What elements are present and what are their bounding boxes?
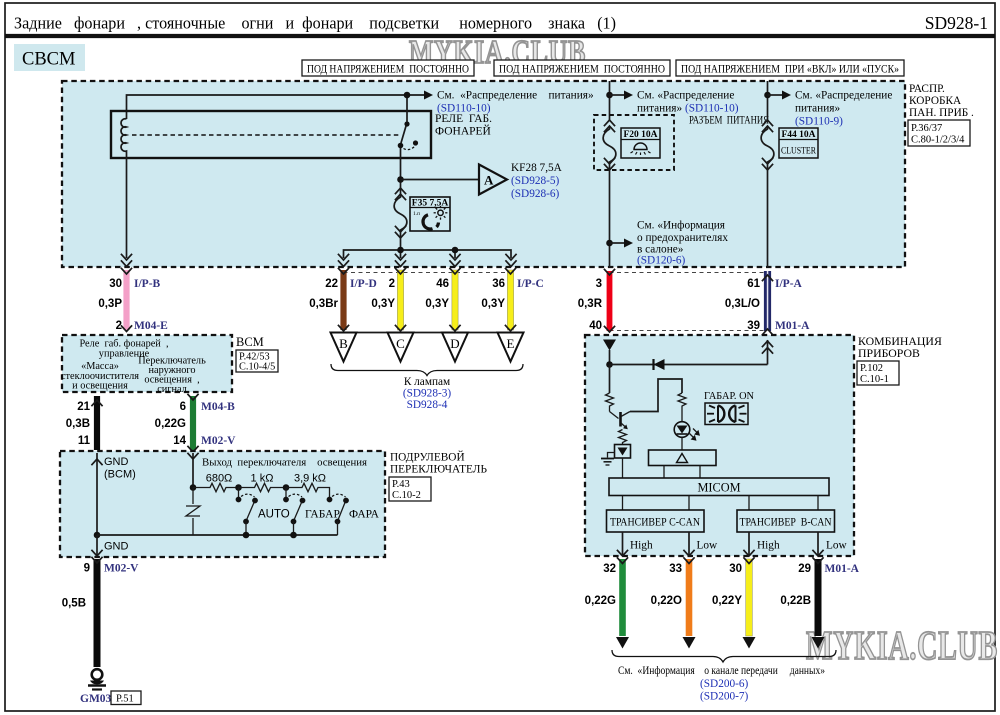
- svg-text:(SD928-3): (SD928-3): [403, 388, 452, 400]
- svg-text:M01-A: M01-A: [775, 320, 810, 332]
- svg-text:ПЕРЕКЛЮЧАТЕЛЬ: ПЕРЕКЛЮЧАТЕЛЬ: [390, 464, 487, 476]
- svg-text:ПОДРУЛЕВОЙ: ПОДРУЛЕВОЙ: [390, 452, 465, 464]
- svg-text:MYKIA.CLUB: MYKIA.CLUB: [806, 622, 998, 668]
- svg-text:См. «Распределение: См. «Распределение: [637, 90, 734, 102]
- svg-text:33: 33: [669, 563, 682, 575]
- svg-text:0,3B: 0,3B: [66, 418, 90, 430]
- svg-text:ФАРА: ФАРА: [349, 509, 380, 521]
- svg-text:D: D: [450, 336, 459, 351]
- svg-text:0,22O: 0,22O: [651, 595, 682, 607]
- svg-text:РАСПР.: РАСПР.: [909, 83, 945, 95]
- svg-text:36: 36: [492, 278, 505, 290]
- svg-text:I/P-A: I/P-A: [775, 278, 803, 290]
- svg-text:ПРИБОРОВ: ПРИБОРОВ: [858, 346, 920, 360]
- svg-text:2: 2: [116, 320, 122, 332]
- svg-text:11: 11: [78, 435, 91, 447]
- svg-text:C.80-1/2/3/4: C.80-1/2/3/4: [911, 135, 965, 146]
- svg-text:1.п: 1.п: [413, 211, 420, 217]
- svg-text:Low: Low: [826, 540, 848, 552]
- svg-text:ФОНАРЕЙ: ФОНАРЕЙ: [435, 124, 491, 138]
- svg-text:(SD928-5): (SD928-5): [511, 175, 560, 187]
- svg-text:B: B: [339, 336, 348, 351]
- svg-text:Low: Low: [697, 540, 719, 552]
- svg-text:GND: GND: [104, 456, 129, 468]
- svg-text:питания»: питания»: [795, 103, 840, 115]
- svg-text:M04-B: M04-B: [201, 401, 235, 413]
- svg-text:3,9 kΩ: 3,9 kΩ: [294, 473, 326, 485]
- svg-text:High: High: [757, 540, 780, 552]
- svg-text:I/P-D: I/P-D: [350, 278, 377, 290]
- svg-text:30: 30: [109, 278, 122, 290]
- svg-text:39: 39: [747, 320, 760, 332]
- svg-text:46: 46: [436, 278, 449, 290]
- svg-text:61: 61: [747, 278, 760, 290]
- svg-text:High: High: [630, 540, 653, 552]
- svg-text:M02-V: M02-V: [201, 435, 236, 447]
- svg-text:РАЗЪЕМ ПИТАНИЯ: РАЗЪЕМ ПИТАНИЯ: [689, 115, 769, 127]
- svg-text:ГАБАР. ON: ГАБАР. ON: [704, 391, 755, 402]
- svg-text:GND: GND: [104, 541, 129, 553]
- svg-text:GM03: GM03: [80, 693, 112, 705]
- svg-text:2: 2: [389, 278, 395, 290]
- svg-text:ТРАНСИВЕР B-CAN: ТРАНСИВЕР B-CAN: [740, 517, 832, 529]
- svg-text:C: C: [396, 336, 405, 351]
- svg-text:РЕЛЕ ГАБ.: РЕЛЕ ГАБ.: [435, 113, 492, 125]
- svg-text:сигнал: сигнал: [157, 384, 187, 395]
- svg-text:ТРАНСИВЕР C-CAN: ТРАНСИВЕР C-CAN: [610, 517, 700, 529]
- svg-text:(SD928-6): (SD928-6): [511, 188, 560, 200]
- svg-text:I/P-C: I/P-C: [517, 278, 544, 290]
- svg-text:0,3Y: 0,3Y: [425, 298, 449, 310]
- svg-text:29: 29: [798, 563, 811, 575]
- svg-text:Задние фонари , стояночные: Задние фонари , стояночные огни и фонари…: [14, 14, 616, 33]
- svg-text:СВСМ: СВСМ: [22, 50, 75, 70]
- svg-text:F20 10A: F20 10A: [623, 130, 657, 140]
- svg-text:C.10-4/5: C.10-4/5: [239, 362, 275, 373]
- svg-text:0,3R: 0,3R: [578, 298, 603, 310]
- svg-text:(SD200-7): (SD200-7): [700, 691, 749, 703]
- svg-text:питания» (SD110-10): питания» (SD110-10): [637, 103, 739, 115]
- svg-text:0,3L/O: 0,3L/O: [725, 298, 760, 310]
- svg-text:I/P-B: I/P-B: [134, 278, 161, 290]
- svg-text:ПОД НАПРЯЖЕНИЕМ ПОСТОЯННО: ПОД НАПРЯЖЕНИЕМ ПОСТОЯННО: [499, 62, 665, 76]
- svg-text:32: 32: [603, 563, 616, 575]
- svg-text:0,22B: 0,22B: [780, 595, 811, 607]
- svg-text:1 kΩ: 1 kΩ: [251, 473, 274, 485]
- svg-text:ВСМ: ВСМ: [236, 335, 264, 349]
- svg-text:(SD110-9): (SD110-9): [795, 116, 843, 128]
- svg-text:M02-V: M02-V: [104, 563, 139, 575]
- svg-text:F44 10A: F44 10A: [781, 130, 815, 140]
- svg-text:(SD110-10): (SD110-10): [437, 103, 491, 115]
- svg-text:См. «Информация: См. «Информация: [637, 220, 725, 232]
- svg-text:MICOM: MICOM: [697, 481, 740, 495]
- svg-text:(BCM): (BCM): [104, 469, 136, 481]
- svg-text:ПОД НАПРЯЖЕНИЕМ ПОСТОЯННО: ПОД НАПРЯЖЕНИЕМ ПОСТОЯННО: [307, 62, 469, 76]
- svg-text:6: 6: [180, 401, 186, 413]
- svg-text:0,5B: 0,5B: [62, 598, 86, 610]
- svg-text:См. «Распределение: См. «Распределение: [795, 90, 892, 102]
- svg-text:A: A: [484, 173, 494, 188]
- svg-text:30: 30: [729, 563, 742, 575]
- svg-text:0,22Y: 0,22Y: [712, 595, 742, 607]
- svg-text:CLUSTER: CLUSTER: [781, 147, 817, 157]
- svg-text:и освещения: и освещения: [72, 381, 128, 392]
- svg-text:К лампам: К лампам: [404, 376, 450, 388]
- svg-text:См. «Информация о канале п: См. «Информация о канале передачи данных…: [618, 665, 825, 677]
- svg-text:(SD120-6): (SD120-6): [637, 255, 686, 267]
- svg-text:680Ω: 680Ω: [206, 473, 233, 485]
- svg-text:КОРОБКА: КОРОБКА: [909, 95, 962, 107]
- svg-text:M04-E: M04-E: [134, 320, 168, 332]
- svg-text:E: E: [507, 336, 515, 351]
- svg-text:3: 3: [596, 278, 602, 290]
- svg-text:P.36/37: P.36/37: [911, 123, 942, 134]
- svg-text:0,22G: 0,22G: [585, 595, 616, 607]
- svg-text:KF28 7,5A: KF28 7,5A: [511, 162, 563, 174]
- svg-text:F35 7,5A: F35 7,5A: [412, 199, 449, 209]
- svg-text:AUTO: AUTO: [258, 509, 290, 521]
- svg-text:См. «Распределение питания: См. «Распределение питания»: [437, 90, 594, 102]
- svg-text:14: 14: [173, 435, 186, 447]
- svg-text:P.102: P.102: [860, 363, 883, 374]
- svg-text:0,3P: 0,3P: [98, 298, 122, 310]
- svg-text:22: 22: [325, 278, 338, 290]
- svg-text:SD928-4: SD928-4: [407, 399, 448, 411]
- svg-text:SD928-1: SD928-1: [925, 13, 988, 33]
- svg-text:40: 40: [589, 320, 602, 332]
- svg-text:21: 21: [77, 401, 90, 413]
- svg-text:P.43: P.43: [392, 479, 410, 490]
- svg-text:0,3Br: 0,3Br: [309, 298, 338, 310]
- svg-text:P.51: P.51: [116, 694, 134, 705]
- svg-text:C.10-1: C.10-1: [860, 374, 889, 385]
- svg-text:о предохранителях: о предохранителях: [637, 232, 728, 244]
- svg-text:ПАН. ПРИБ .: ПАН. ПРИБ .: [909, 107, 974, 119]
- svg-text:0,3Y: 0,3Y: [371, 298, 395, 310]
- svg-text:ГАБАР: ГАБАР: [305, 509, 340, 521]
- svg-text:(SD200-6): (SD200-6): [700, 678, 749, 690]
- svg-text:C.10-2: C.10-2: [392, 490, 421, 501]
- svg-text:0,3Y: 0,3Y: [481, 298, 505, 310]
- svg-text:Выход переключателя освеще: Выход переключателя освещения: [202, 457, 367, 469]
- svg-text:ПОД НАПРЯЖЕНИЕМ ПРИ «ВКЛ» ИЛИ: ПОД НАПРЯЖЕНИЕМ ПРИ «ВКЛ» ИЛИ «ПУСК»: [681, 62, 899, 76]
- svg-text:9: 9: [84, 563, 90, 575]
- svg-text:0,22G: 0,22G: [155, 418, 186, 430]
- svg-text:M01-A: M01-A: [825, 563, 860, 575]
